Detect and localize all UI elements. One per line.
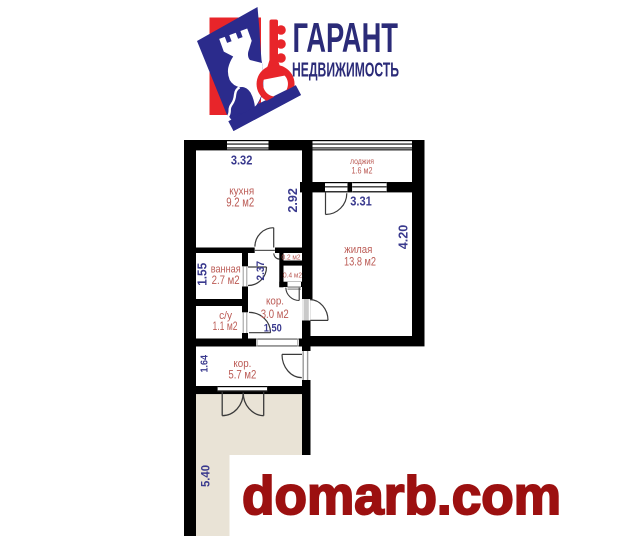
svg-text:НЕДВИЖИМОСТЬ: НЕДВИЖИМОСТЬ — [292, 59, 399, 82]
svg-text:2.37: 2.37 — [255, 261, 267, 281]
svg-text:9.2 м2: 9.2 м2 — [226, 196, 254, 210]
svg-text:3.0 м2: 3.0 м2 — [261, 307, 289, 321]
svg-text:2.7 м2: 2.7 м2 — [212, 273, 240, 287]
svg-text:0.4 м2: 0.4 м2 — [283, 270, 302, 279]
svg-text:domarb.com: domarb.com — [242, 466, 561, 526]
svg-text:2.92: 2.92 — [285, 188, 300, 213]
svg-text:4.20: 4.20 — [396, 225, 411, 250]
svg-text:ГАРАНТ: ГАРАНТ — [293, 14, 399, 61]
svg-text:5.40: 5.40 — [200, 465, 212, 487]
svg-text:3.32: 3.32 — [231, 153, 253, 168]
svg-text:1.55: 1.55 — [195, 263, 210, 286]
svg-text:кор.: кор. — [266, 296, 284, 308]
svg-text:3.31: 3.31 — [350, 194, 372, 209]
svg-text:13.8 м2: 13.8 м2 — [344, 254, 376, 268]
svg-text:1.50: 1.50 — [264, 323, 282, 335]
svg-text:1.64: 1.64 — [199, 355, 211, 373]
svg-text:5.7 м2: 5.7 м2 — [228, 367, 256, 381]
svg-text:0.2 м2: 0.2 м2 — [282, 252, 301, 261]
svg-text:1.6 м2: 1.6 м2 — [352, 166, 373, 177]
svg-text:1.1 м2: 1.1 м2 — [213, 319, 238, 333]
svg-text:лоджия: лоджия — [350, 156, 374, 166]
